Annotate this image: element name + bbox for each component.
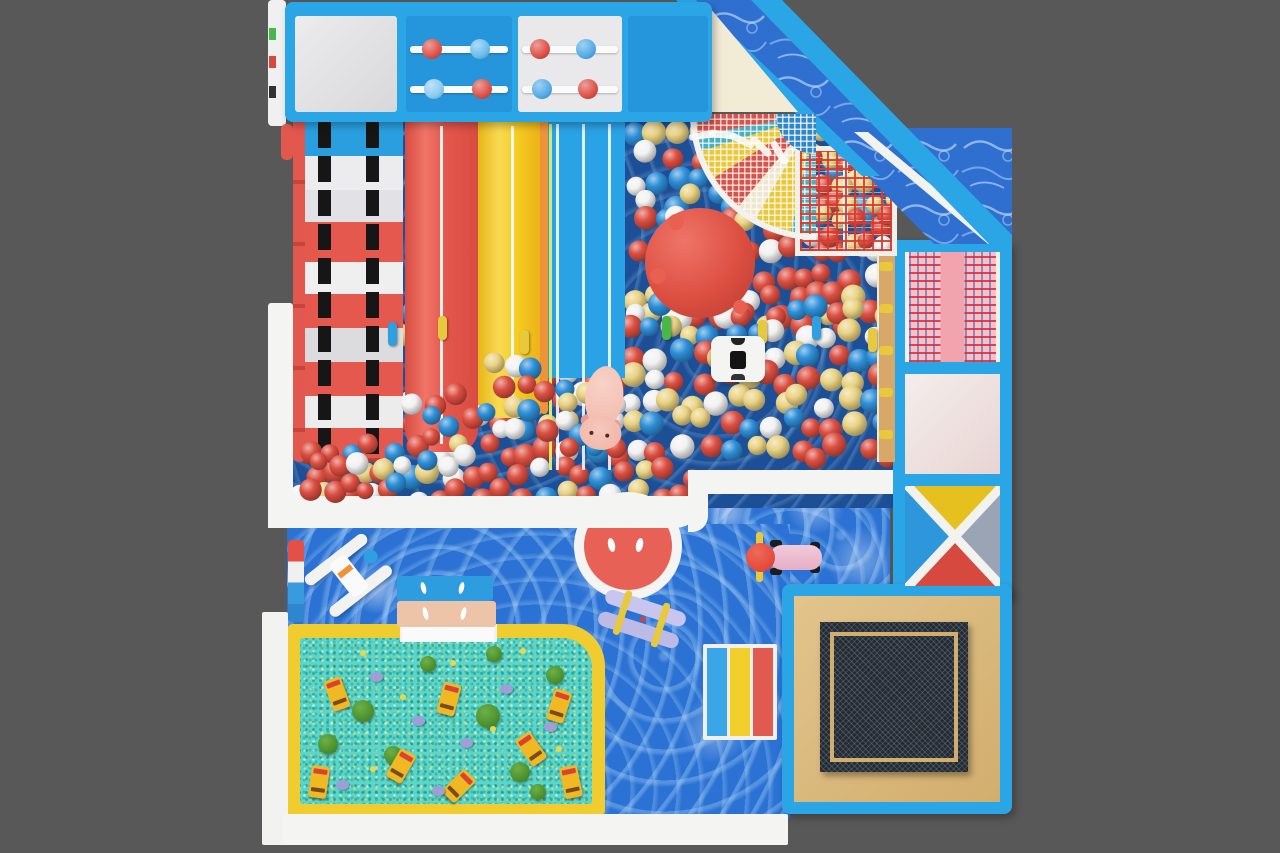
bus-toy[interactable] [308, 765, 330, 799]
top-panel-blue-plain [628, 16, 708, 112]
flower-dot [360, 650, 366, 656]
flower-dot [370, 766, 376, 772]
rock-toy [460, 738, 473, 748]
footprint [607, 537, 617, 552]
picnic-bench-blue [397, 576, 493, 601]
tree-toy [486, 646, 502, 662]
giant-red-ball-bump [650, 268, 666, 284]
tree-toy [530, 784, 546, 800]
rocker-handle [361, 547, 381, 567]
bus-stripe [326, 679, 341, 688]
giant-red-ball-bump [668, 214, 684, 230]
trampoline-mesh-frame [830, 632, 958, 762]
meadow-mat [300, 638, 592, 804]
mat-stripe-blue [707, 648, 727, 736]
bus-window [332, 697, 347, 706]
abacus-panel [406, 16, 512, 112]
abacus-bead[interactable] [576, 39, 596, 59]
scooter-body [770, 545, 822, 570]
slide-red-centerline [440, 126, 443, 444]
rock-toy [432, 786, 445, 796]
bus-window [549, 710, 564, 718]
panel-white [905, 374, 1000, 474]
abacus-panel [518, 16, 622, 112]
abacus-bead[interactable] [530, 39, 550, 59]
footprint [635, 537, 645, 552]
panel-crosshatch [905, 252, 1000, 362]
lane-line-yellow [549, 124, 552, 470]
pole-tick-red [269, 56, 276, 68]
tree-toy [476, 704, 500, 728]
rock-toy [544, 722, 557, 732]
bus-toy[interactable] [323, 676, 351, 712]
slide-lane-blue [548, 122, 625, 378]
toy-pig [576, 364, 631, 454]
rock-toy [500, 684, 513, 694]
bus-window [440, 703, 455, 710]
bus-stripe [518, 734, 532, 746]
tree-toy [546, 666, 564, 684]
wood-ladder-rung [879, 304, 893, 313]
pit-border-bottom-right [690, 470, 893, 494]
pit-border-left [268, 303, 293, 527]
bus-stripe [555, 691, 570, 700]
red-knob [281, 124, 293, 160]
playground-scene [0, 0, 1280, 853]
ladder-strap-right [366, 122, 379, 458]
wood-ladder-rung [879, 262, 893, 271]
flower-dot [556, 746, 562, 752]
abacus-bead[interactable] [424, 79, 444, 99]
climb-peg[interactable] [438, 316, 447, 340]
climb-peg[interactable] [520, 330, 529, 354]
abacus-bead[interactable] [470, 39, 490, 59]
ladder-side-rail [293, 122, 305, 462]
toy-scooter [742, 532, 822, 582]
picnic-bench-tan [397, 601, 496, 627]
tree-toy [510, 762, 530, 782]
bench-mark [460, 607, 468, 621]
slide-yellow-centerline [511, 126, 514, 410]
giant-red-ball-bump [733, 300, 747, 314]
pole-tick-green [269, 28, 276, 40]
mat-stripe-yellow [730, 648, 750, 736]
abacus-bead[interactable] [578, 79, 598, 99]
abacus-bead[interactable] [472, 79, 492, 99]
bench-mark [422, 607, 430, 621]
car-seat [730, 351, 746, 369]
rock-toy [370, 672, 383, 682]
flower-dot [400, 694, 406, 700]
bench-mark [420, 582, 428, 595]
tree-toy [318, 734, 338, 754]
wood-ladder-rung [879, 346, 893, 355]
climb-peg[interactable] [388, 322, 397, 346]
walkway-border-left [262, 612, 288, 845]
bus-stripe [313, 768, 328, 775]
scooter-head [746, 543, 775, 572]
mat-stripe-red [753, 648, 773, 736]
tree-toy [420, 656, 436, 672]
bus-toy[interactable] [441, 768, 476, 803]
bus-window [390, 768, 404, 778]
flower-dot [490, 726, 496, 732]
table-slab [402, 627, 494, 641]
bus-toy[interactable] [545, 688, 572, 724]
tree-toy [352, 700, 374, 722]
bus-stripe [561, 768, 576, 776]
car-windshield [731, 338, 745, 345]
abacus-bead[interactable] [532, 79, 552, 99]
ladder-strap-left [318, 122, 331, 458]
toy-car [711, 336, 765, 382]
wood-ladder-rung [879, 430, 893, 439]
climb-peg[interactable] [812, 316, 821, 340]
striped-pole [288, 540, 304, 622]
pole-tick-dark [269, 86, 276, 98]
bus-toy[interactable] [436, 681, 462, 717]
bus-stripe [444, 685, 459, 693]
bus-window [447, 785, 460, 798]
abacus-bead[interactable] [422, 39, 442, 59]
rock-toy [336, 780, 349, 790]
climb-peg[interactable] [868, 328, 877, 352]
bus-stripe [460, 772, 473, 785]
rock-toy [412, 716, 425, 726]
bus-window [565, 786, 580, 793]
slide-yellow-rail [540, 122, 548, 414]
lane-line [556, 124, 559, 470]
bench-mark [458, 582, 466, 595]
flower-dot [450, 660, 456, 666]
striped-mat [703, 644, 777, 740]
pit-border-bottom-left [268, 496, 706, 528]
climb-ladder [293, 122, 403, 458]
climb-peg[interactable] [662, 316, 671, 340]
flower-dot [520, 648, 526, 654]
panel-x [905, 486, 1000, 586]
bus-stripe [399, 751, 414, 762]
top-panel-gray [295, 16, 397, 112]
bus-window [311, 787, 325, 793]
car-bumper [731, 374, 745, 380]
wood-ladder-rung [879, 388, 893, 397]
bus-toy[interactable] [559, 764, 583, 799]
bus-window [529, 750, 543, 761]
walkway-border-bottom [283, 814, 788, 845]
